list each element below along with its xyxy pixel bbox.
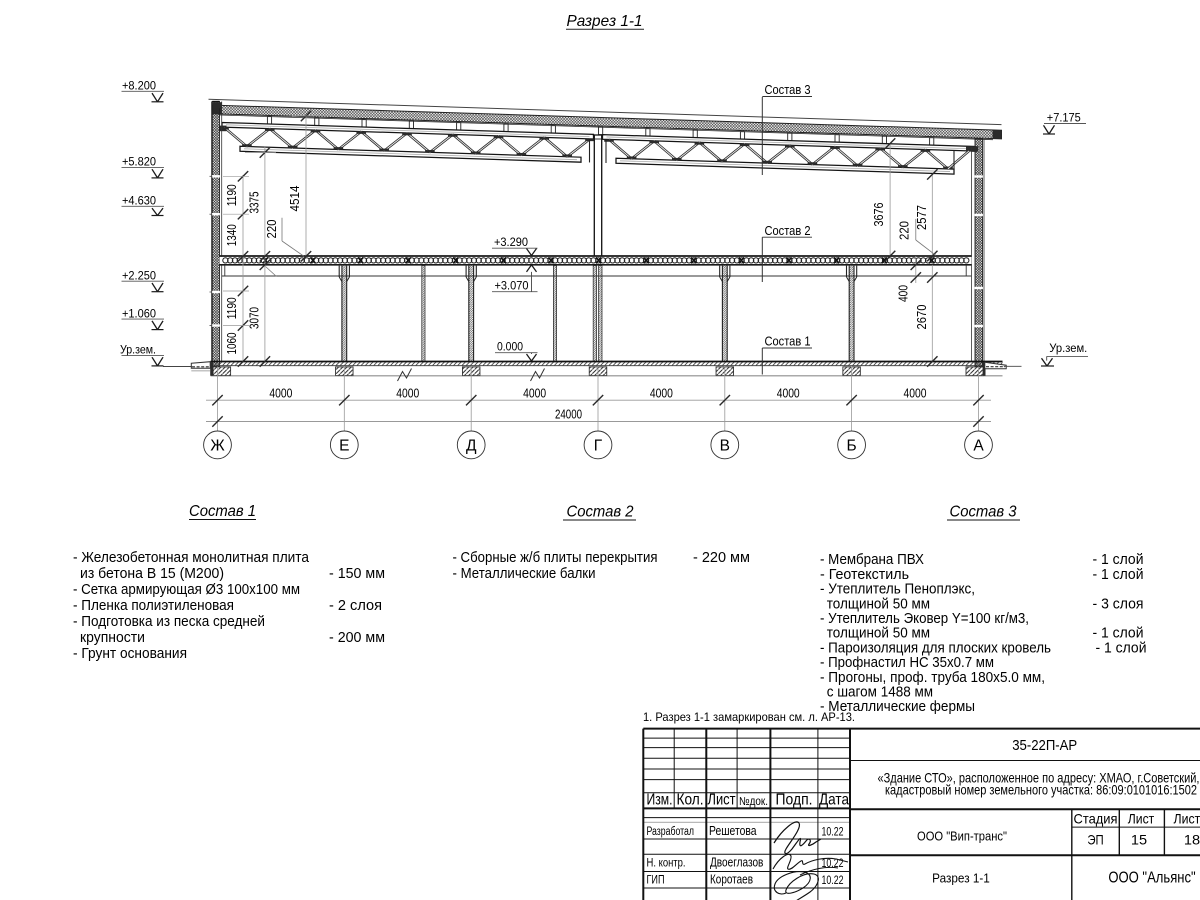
svg-text:- Утеплитель Пеноплэкс,: - Утеплитель Пеноплэкс, — [820, 582, 975, 598]
svg-text:Листов: Листов — [1174, 811, 1200, 827]
svg-text:- 1 слой: - 1 слой — [1093, 626, 1144, 642]
svg-text:1190: 1190 — [225, 184, 239, 206]
svg-text:Б: Б — [847, 437, 857, 454]
svg-text:- 3 слоя: - 3 слоя — [1093, 596, 1144, 612]
svg-text:ООО "Альянс": ООО "Альянс" — [1108, 870, 1195, 887]
svg-text:Изм.: Изм. — [647, 792, 673, 809]
svg-text:220: 220 — [265, 219, 279, 238]
svg-text:400: 400 — [897, 285, 911, 302]
svg-text:- 2 слоя: - 2 слоя — [329, 598, 382, 614]
svg-text:+8.200: +8.200 — [122, 79, 156, 93]
svg-text:4000: 4000 — [269, 386, 292, 400]
svg-text:2577: 2577 — [915, 205, 929, 230]
svg-text:- Подготовка из песка средней: - Подготовка из песка средней — [73, 614, 265, 630]
svg-text:Н. контр.: Н. контр. — [647, 858, 686, 870]
svg-text:220: 220 — [898, 221, 912, 240]
svg-text:из бетона В 15 (М200): из бетона В 15 (М200) — [73, 566, 224, 582]
svg-text:10.22: 10.22 — [822, 875, 844, 887]
svg-text:- Металлические балки: - Металлические балки — [453, 566, 596, 582]
svg-text:15: 15 — [1131, 832, 1147, 848]
svg-text:Разрез 1-1: Разрез 1-1 — [567, 13, 643, 30]
svg-text:1190: 1190 — [225, 297, 239, 319]
svg-text:Решетова: Решетова — [709, 824, 757, 838]
svg-text:ЭП: ЭП — [1087, 832, 1103, 848]
svg-text:- Мембрана ПВХ: - Мембрана ПВХ — [820, 552, 924, 568]
svg-text:3070: 3070 — [248, 307, 262, 329]
svg-text:ООО "Вип-транс": ООО "Вип-транс" — [917, 829, 1007, 844]
svg-text:2670: 2670 — [915, 304, 929, 329]
svg-text:- Геотекстиль: - Геотекстиль — [820, 567, 909, 583]
svg-text:+5.820: +5.820 — [122, 154, 156, 168]
svg-text:+7.175: +7.175 — [1047, 111, 1081, 125]
svg-text:18: 18 — [1184, 832, 1200, 848]
svg-text:- Сетка армирующая Ø3 100х100: - Сетка армирующая Ø3 100х100 мм — [73, 582, 300, 598]
svg-text:Подп.: Подп. — [776, 792, 813, 809]
svg-text:10.22: 10.22 — [822, 827, 844, 839]
svg-text:- Профнастил НС 35х0.7 мм: - Профнастил НС 35х0.7 мм — [820, 655, 994, 671]
svg-text:4000: 4000 — [904, 386, 927, 400]
svg-text:Лист: Лист — [1128, 811, 1155, 827]
svg-text:Состав 2: Состав 2 — [765, 224, 811, 238]
svg-text:ГИП: ГИП — [647, 875, 665, 887]
svg-text:- Сборные ж/б плиты перекрытия: - Сборные ж/б плиты перекрытия — [453, 550, 658, 566]
svg-text:Кол.: Кол. — [677, 792, 704, 809]
svg-text:Г: Г — [594, 437, 603, 454]
svg-text:4000: 4000 — [650, 386, 673, 400]
svg-text:Ур.зем.: Ур.зем. — [120, 342, 156, 356]
svg-text:- Железобетонная монолитная п: - Железобетонная монолитная плита — [73, 550, 310, 566]
svg-text:Ж: Ж — [210, 437, 225, 454]
svg-text:- Пароизоляция для плоских кро: - Пароизоляция для плоских кровель — [820, 640, 1051, 656]
svg-text:1. Разрез 1-1 замаркирован см.: 1. Разрез 1-1 замаркирован см. л. АР-13. — [643, 710, 855, 724]
svg-text:3375: 3375 — [248, 191, 262, 213]
svg-text:+4.630: +4.630 — [122, 193, 156, 207]
svg-text:Состав 1: Состав 1 — [189, 503, 256, 520]
svg-text:- 1 слой: - 1 слой — [1096, 640, 1147, 656]
svg-text:4000: 4000 — [396, 386, 419, 400]
svg-text:- Грунт основания: - Грунт основания — [73, 646, 187, 662]
svg-text:с шагом 1488 мм: с шагом 1488 мм — [820, 685, 933, 701]
svg-text:Д: Д — [466, 437, 477, 454]
svg-text:Лист: Лист — [708, 792, 737, 809]
svg-text:Состав 2: Состав 2 — [567, 504, 634, 521]
svg-text:Ур.зем.: Ур.зем. — [1049, 341, 1087, 355]
svg-text:Стадия: Стадия — [1074, 811, 1118, 827]
svg-text:Двоеглазов: Двоеглазов — [710, 856, 764, 870]
svg-text:- 1 слой: - 1 слой — [1093, 567, 1144, 583]
svg-text:35-22П-АР: 35-22П-АР — [1012, 737, 1077, 754]
svg-text:- Прогоны, проф. труба 180х5.0: - Прогоны, проф. труба 180х5.0 мм, — [820, 670, 1045, 686]
svg-text:Состав 3: Состав 3 — [950, 504, 1017, 521]
svg-text:4000: 4000 — [777, 386, 800, 400]
svg-text:толщиной 50 мм: толщиной 50 мм — [820, 626, 930, 642]
svg-text:+2.250: +2.250 — [122, 268, 156, 282]
svg-text:крупности: крупности — [73, 630, 145, 646]
svg-text:А: А — [973, 437, 984, 454]
svg-text:Коротаев: Коротаев — [710, 873, 753, 887]
svg-text:В: В — [720, 437, 730, 454]
svg-text:0.000: 0.000 — [497, 340, 523, 354]
svg-text:1060: 1060 — [225, 332, 239, 354]
svg-text:- 200 мм: - 200 мм — [329, 630, 385, 646]
svg-text:Разрез 1-1: Разрез 1-1 — [932, 871, 990, 886]
svg-text:№док.: №док. — [739, 796, 768, 808]
svg-text:- 150 мм: - 150 мм — [329, 566, 385, 582]
svg-text:3676: 3676 — [872, 202, 886, 226]
svg-text:толщиной 50 мм: толщиной 50 мм — [820, 596, 930, 612]
svg-text:+3.070: +3.070 — [495, 279, 529, 293]
svg-text:Дата: Дата — [819, 792, 849, 809]
svg-text:+3.290: +3.290 — [494, 235, 528, 249]
svg-text:Состав 1: Состав 1 — [765, 335, 811, 349]
svg-text:24000: 24000 — [555, 408, 582, 422]
svg-text:+1.060: +1.060 — [122, 306, 156, 320]
svg-text:кадастровый номер земельного у: кадастровый номер земельного участка: 86… — [885, 783, 1197, 798]
svg-text:- 1 слой: - 1 слой — [1093, 552, 1144, 568]
svg-text:- Пленка полиэтиленовая: - Пленка полиэтиленовая — [73, 598, 234, 614]
svg-text:Е: Е — [339, 437, 349, 454]
svg-text:4514: 4514 — [288, 185, 302, 211]
svg-text:Разработал: Разработал — [647, 826, 695, 838]
svg-text:- 220 мм: - 220 мм — [693, 550, 750, 566]
svg-text:4000: 4000 — [523, 386, 546, 400]
svg-text:- Утеплитель Эковер Y=100 кг/м: - Утеплитель Эковер Y=100 кг/м3, — [820, 611, 1029, 627]
svg-text:1340: 1340 — [225, 224, 239, 246]
svg-text:Состав 3: Состав 3 — [765, 83, 811, 97]
